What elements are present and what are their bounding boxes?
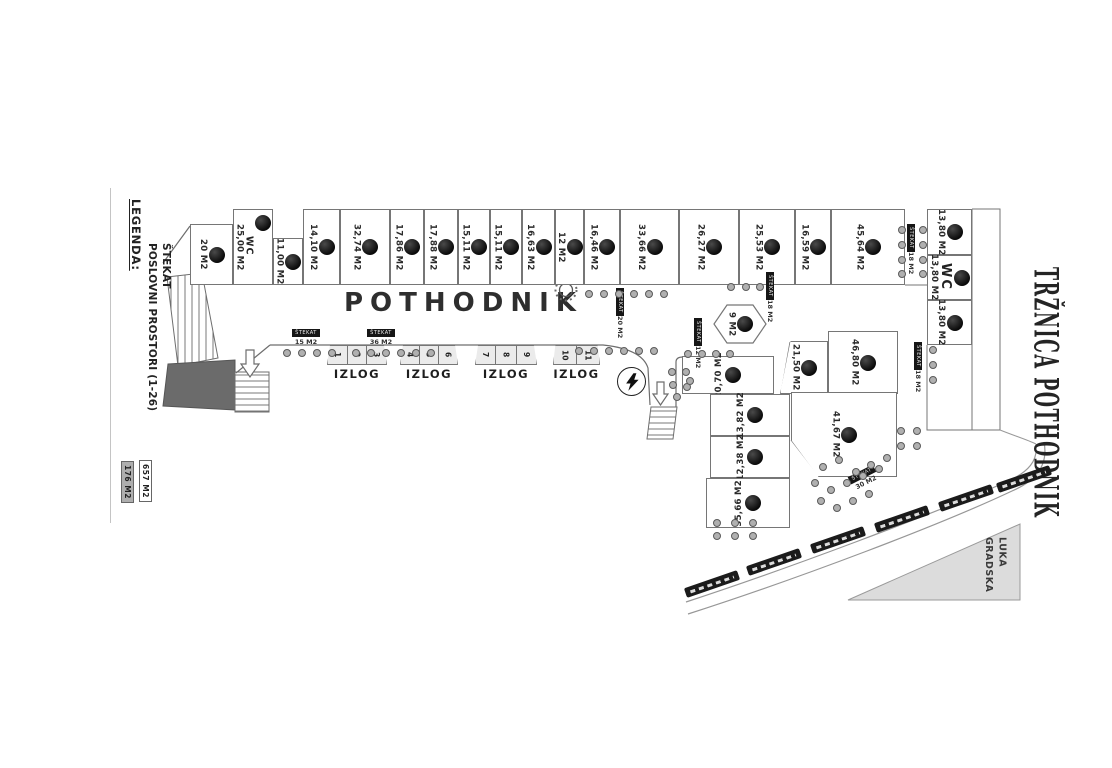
unit-16-63-m2: 16,63 M2: [522, 209, 555, 285]
unit-13-80-m2: WC13,80 M2: [927, 255, 972, 300]
unit-12-m2: 12 M2: [555, 209, 584, 285]
unit-area-label: 16,59 M2: [800, 224, 809, 271]
stekat-dot: [898, 256, 906, 264]
unit-13-82-m2: 13,82 M2: [710, 394, 790, 436]
unit-area-label: 21,50 M2: [791, 344, 800, 391]
stekat-dot: [929, 376, 937, 384]
stekat-area-value: 20 M2: [617, 316, 624, 338]
stall-number: 6: [444, 352, 453, 357]
stekat-dot: [919, 241, 927, 249]
unit-number-marker: [471, 239, 487, 255]
unit-number-marker: [706, 239, 722, 255]
stekat-dot: [585, 290, 593, 298]
unit-label-wrap: 15,11 M2: [493, 224, 502, 271]
unit-area-label: 32,74 M2: [352, 224, 361, 271]
unit-number-marker: [947, 224, 963, 240]
stall-number: 10: [561, 350, 570, 360]
unit-number-marker: [801, 360, 817, 376]
unit-20-m2: 20 M2: [190, 224, 233, 285]
unit-area-label: 13,80 M2: [936, 209, 945, 256]
stekat-dot: [698, 350, 706, 358]
harbor-label-line2: LUKA: [997, 537, 1008, 567]
stekat-dot: [620, 347, 628, 355]
stekat-dot: [382, 349, 390, 357]
unit-label-wrap: 11,00 M2: [275, 238, 284, 285]
stekat-label: ŠTEKAT18 M2: [762, 272, 778, 322]
unit-label-wrap: 17,86 M2: [394, 224, 403, 271]
unit-label-wrap: 14,10 M2: [308, 224, 317, 271]
unit-number-marker: [404, 239, 420, 255]
stekat-dot: [833, 504, 841, 512]
stekat-dot: [827, 486, 835, 494]
harbor-label: GRADSKA LUKA: [981, 537, 1009, 592]
unit-area-label: 45,64 M2: [855, 224, 864, 271]
unit-area-label: 12 M2: [556, 232, 565, 263]
stekat-label: ŠTEKAT15 M2: [288, 329, 324, 346]
stekat-dot: [843, 479, 851, 487]
stekat-dot: [397, 349, 405, 357]
stall-number: 8: [501, 352, 510, 357]
stekat-dot: [898, 270, 906, 278]
stall-6: 6: [438, 346, 457, 364]
unit-label-wrap: 32,74 M2: [352, 224, 361, 271]
electricity-icon: [617, 367, 646, 396]
stekat-dot: [713, 519, 721, 527]
unit-17-88-m2: 17,88 M2: [424, 209, 458, 285]
unit-number-marker: [647, 239, 663, 255]
down-arrow-icon: [653, 382, 668, 405]
stekat-dot: [929, 346, 937, 354]
stekat-dot: [811, 479, 819, 487]
unit-area-label: 16,46 M2: [589, 224, 598, 271]
unit-number-marker: [725, 367, 741, 383]
stekat-dot: [919, 270, 927, 278]
unit-number-marker: [285, 254, 301, 270]
unit-label-wrap: 25,53 M2: [754, 224, 763, 271]
stekat-dot: [352, 349, 360, 357]
stekat-dot: [645, 290, 653, 298]
unit-area-label: 46,80 M2: [850, 339, 859, 386]
wc-label: WC: [938, 254, 952, 299]
unit-area-label: 9 M2: [727, 312, 736, 336]
stekat-dot: [749, 532, 757, 540]
stekat-dot: [875, 465, 883, 473]
unit-label-wrap: 12 M2: [556, 232, 565, 263]
unit-label-wrap: 26,27 M2: [696, 224, 705, 271]
stekat-dot: [328, 349, 336, 357]
stekat-dot: [731, 532, 739, 540]
unit-label-wrap: 12,38 M2: [737, 434, 746, 481]
unit-number-marker: [438, 239, 454, 255]
unit-area-label: 12,38 M2: [737, 434, 746, 481]
unit-number-marker: [841, 427, 857, 443]
stall-7: 7: [476, 346, 495, 364]
stekat-dot: [684, 350, 692, 358]
unit-label-wrap: 20,70 M2: [715, 352, 724, 399]
stekat-dot: [859, 472, 867, 480]
hatched-ramp-band: [167, 273, 218, 366]
unit-number-marker: [362, 239, 378, 255]
stekat-area-value: 36 M2: [370, 338, 392, 346]
unit-area-label: 25,00 M2: [235, 224, 244, 271]
legend-heading: LEGENDA:: [129, 199, 143, 271]
unit-number-marker: [747, 407, 763, 423]
stekat-dot: [867, 461, 875, 469]
izlog-label-1: IZLOG: [327, 367, 387, 381]
stall-group-3: 789: [475, 345, 537, 365]
stekat-dot: [913, 442, 921, 450]
unit-area-label: 11,00 M2: [275, 238, 284, 285]
unit-label-wrap: WC25,00 M2: [235, 224, 254, 271]
legend-item-stekat: ŠTEKAT: [160, 243, 172, 411]
stekat-dot: [682, 368, 690, 376]
unit-number-marker: [536, 239, 552, 255]
stekat-area-value: 15 M2: [295, 338, 317, 346]
dark-ramp: [163, 360, 235, 410]
izlog-label-2: IZLOG: [400, 367, 458, 381]
scan-edge-line: [110, 188, 111, 523]
floor-plan-page: LEGENDA: POSLOVNI PROSTORI (1-26) ŠTEKAT…: [0, 0, 1112, 768]
stall-number: 9: [522, 352, 531, 357]
unit-number-marker: [947, 315, 963, 331]
unit-label-wrap: 41,67 M2: [831, 411, 840, 458]
unit-label-wrap: 13,82 M2: [737, 392, 746, 439]
unit-number-marker: [737, 316, 753, 332]
unit-15-11-m2: 15,11 M2: [458, 209, 490, 285]
unit-area-label: 17,88 M2: [428, 224, 437, 271]
stall-9: 9: [516, 346, 536, 364]
unit-number-marker: [209, 247, 225, 263]
unit-16-46-m2: 16,46 M2: [584, 209, 620, 285]
unit-area-label: 26,27 M2: [696, 224, 705, 271]
unit-label-wrap: 15,11 M2: [461, 224, 470, 271]
unit-25-00-m2: WC25,00 M2: [233, 209, 273, 285]
unit-45-64-m2: 45,64 M2: [831, 209, 905, 285]
side-title-wrap: TRŽNICA POTHODNIK: [1012, 228, 1076, 558]
unit-number-marker: [599, 239, 615, 255]
stekat-dot: [313, 349, 321, 357]
izlog-label-4: IZLOG: [553, 367, 600, 381]
stekat-dot: [713, 532, 721, 540]
unit-33-66-m2: 33,66 M2: [620, 209, 679, 285]
stekat-dot: [686, 377, 694, 385]
unit-number-marker: [954, 270, 970, 286]
unit-label-wrap: 21,50 M2: [791, 344, 800, 391]
stekat-dot: [635, 347, 643, 355]
stekat-dot: [913, 427, 921, 435]
stekat-dot: [590, 347, 598, 355]
unit-number-marker: [747, 449, 763, 465]
unit-area-label: 15,11 M2: [461, 224, 470, 271]
stekat-tag: ŠTEKAT: [766, 272, 774, 300]
unit-number-marker: [745, 495, 761, 511]
stekat-dot: [600, 290, 608, 298]
staircase-center: [647, 407, 677, 439]
stekat-dot: [756, 283, 764, 291]
unit-label-wrap: 33,66 M2: [636, 224, 645, 271]
unit-16-59-m2: 16,59 M2: [795, 209, 831, 285]
stekat-dot: [650, 347, 658, 355]
unit-area-label: 14,10 M2: [308, 224, 317, 271]
legend-item-business-premises: POSLOVNI PROSTORI (1-26): [146, 243, 158, 411]
stekat-dot: [819, 463, 827, 471]
harbor-label-line1: GRADSKA: [983, 537, 994, 592]
unit-area-label: 33,66 M2: [636, 224, 645, 271]
stekat-dot: [849, 497, 857, 505]
wc-label: WC: [243, 224, 253, 269]
stekat-dot: [283, 349, 291, 357]
unit-label-wrap: 13,80 M2: [936, 209, 945, 256]
stekat-area-value: 18 M2: [908, 252, 915, 274]
stekat-dot: [865, 490, 873, 498]
stekat-dot: [897, 427, 905, 435]
izlog-label-3: IZLOG: [475, 367, 537, 381]
unit-area-label: 15,11 M2: [493, 224, 502, 271]
unit-number-marker: [567, 239, 583, 255]
unit-label-wrap: 20 M2: [198, 239, 207, 270]
stekat-dot: [835, 456, 843, 464]
stekat-dot: [742, 283, 750, 291]
unit-number-marker: [255, 215, 271, 231]
stekat-tag: ŠTEKAT: [292, 329, 320, 337]
stall-8: 8: [495, 346, 515, 364]
staircase-top-left: [235, 372, 269, 412]
unit-number-marker: [319, 239, 335, 255]
legend-area-business: 657 M2: [139, 460, 152, 502]
stekat-dot: [897, 442, 905, 450]
unit-label-wrap: 17,88 M2: [428, 224, 437, 271]
unit-9-m2: 9 M2: [714, 305, 766, 343]
stekat-label: ŠTEKAT18 M2: [910, 342, 926, 392]
unit-13-80-m2: 13,80 M2: [927, 300, 972, 345]
legend-area-stekat: 176 M2: [121, 461, 134, 503]
unit-14-10-m2: 14,10 M2: [303, 209, 340, 285]
stekat-area-value: 18 M2: [767, 300, 774, 322]
stekat-dot: [898, 241, 906, 249]
unit-17-86-m2: 17,86 M2: [390, 209, 424, 285]
unit-26-27-m2: 26,27 M2: [679, 209, 739, 285]
stekat-dot: [919, 226, 927, 234]
stekat-dot: [929, 361, 937, 369]
stekat-dot: [660, 290, 668, 298]
stekat-dot: [630, 290, 638, 298]
unit-number-marker: [810, 239, 826, 255]
stekat-dot: [749, 519, 757, 527]
stekat-dot: [817, 497, 825, 505]
stekat-area-value: 18 M2: [915, 370, 922, 392]
unit-number-marker: [503, 239, 519, 255]
stekat-dot: [605, 347, 613, 355]
unit-area-label: 13,82 M2: [737, 392, 746, 439]
unit-number-marker: [865, 239, 881, 255]
stekat-label: ŠTEKAT36 M2: [363, 329, 399, 346]
stekat-dot: [726, 350, 734, 358]
stekat-dot: [427, 349, 435, 357]
unit-area-label: 41,67 M2: [831, 411, 840, 458]
unit-32-74-m2: 32,74 M2: [340, 209, 390, 285]
unit-label-wrap: 46,80 M2: [850, 339, 859, 386]
unit-label-wrap: 16,46 M2: [589, 224, 598, 271]
stall-number: 7: [481, 352, 490, 357]
plan-title: POTHODNIK: [344, 288, 583, 318]
unit-area-label: 20,70 M2: [715, 352, 724, 399]
unit-label-wrap: 9 M2: [727, 312, 736, 336]
unit-11-00-m2: 11,00 M2: [273, 238, 303, 285]
stekat-dot: [412, 349, 420, 357]
stekat-dot: [898, 226, 906, 234]
legend: POSLOVNI PROSTORI (1-26) ŠTEKAT: [146, 243, 172, 411]
stekat-tag: ŠTEKAT: [914, 342, 922, 370]
unit-area-label: 25,53 M2: [754, 224, 763, 271]
stekat-dot: [919, 256, 927, 264]
unit-area-label: 17,86 M2: [394, 224, 403, 271]
unit-area-label: 13,80 M2: [936, 299, 945, 346]
unit-area-label: 13,80 M2: [929, 254, 938, 301]
unit-46-80-m2: 46,80 M2: [828, 331, 898, 394]
stekat-dot: [673, 393, 681, 401]
stekat-tag: ŠTEKAT: [694, 318, 702, 346]
unit-area-label: 16,63 M2: [525, 224, 534, 271]
stekat-dot: [575, 347, 583, 355]
unit-label-wrap: WC13,80 M2: [929, 254, 952, 301]
stekat-tag: ŠTEKAT: [907, 224, 915, 252]
stekat-dot: [712, 350, 720, 358]
stekat-dot: [367, 349, 375, 357]
unit-area-label: 20 M2: [198, 239, 207, 270]
unit-label-wrap: 16,59 M2: [800, 224, 809, 271]
stekat-tag: ŠTEKAT: [367, 329, 395, 337]
unit-number-marker: [860, 355, 876, 371]
unit-label-wrap: 16,63 M2: [525, 224, 534, 271]
stekat-dot: [615, 290, 623, 298]
stall-10: 10: [554, 346, 576, 364]
stekat-dot: [298, 349, 306, 357]
unit-12-38-m2: 12,38 M2: [710, 436, 790, 478]
stekat-dot: [669, 381, 677, 389]
stekat-dot: [727, 283, 735, 291]
unit-13-80-m2: 13,80 M2: [927, 209, 972, 255]
unit-label-wrap: 45,64 M2: [855, 224, 864, 271]
stekat-dot: [731, 519, 739, 527]
unit-label-wrap: 13,80 M2: [936, 299, 945, 346]
unit-number-marker: [764, 239, 780, 255]
stekat-dot: [883, 454, 891, 462]
stekat-label: ŠTEKAT12 M2: [690, 318, 706, 368]
stekat-dot: [668, 368, 676, 376]
unit-15-11-m2: 15,11 M2: [490, 209, 522, 285]
